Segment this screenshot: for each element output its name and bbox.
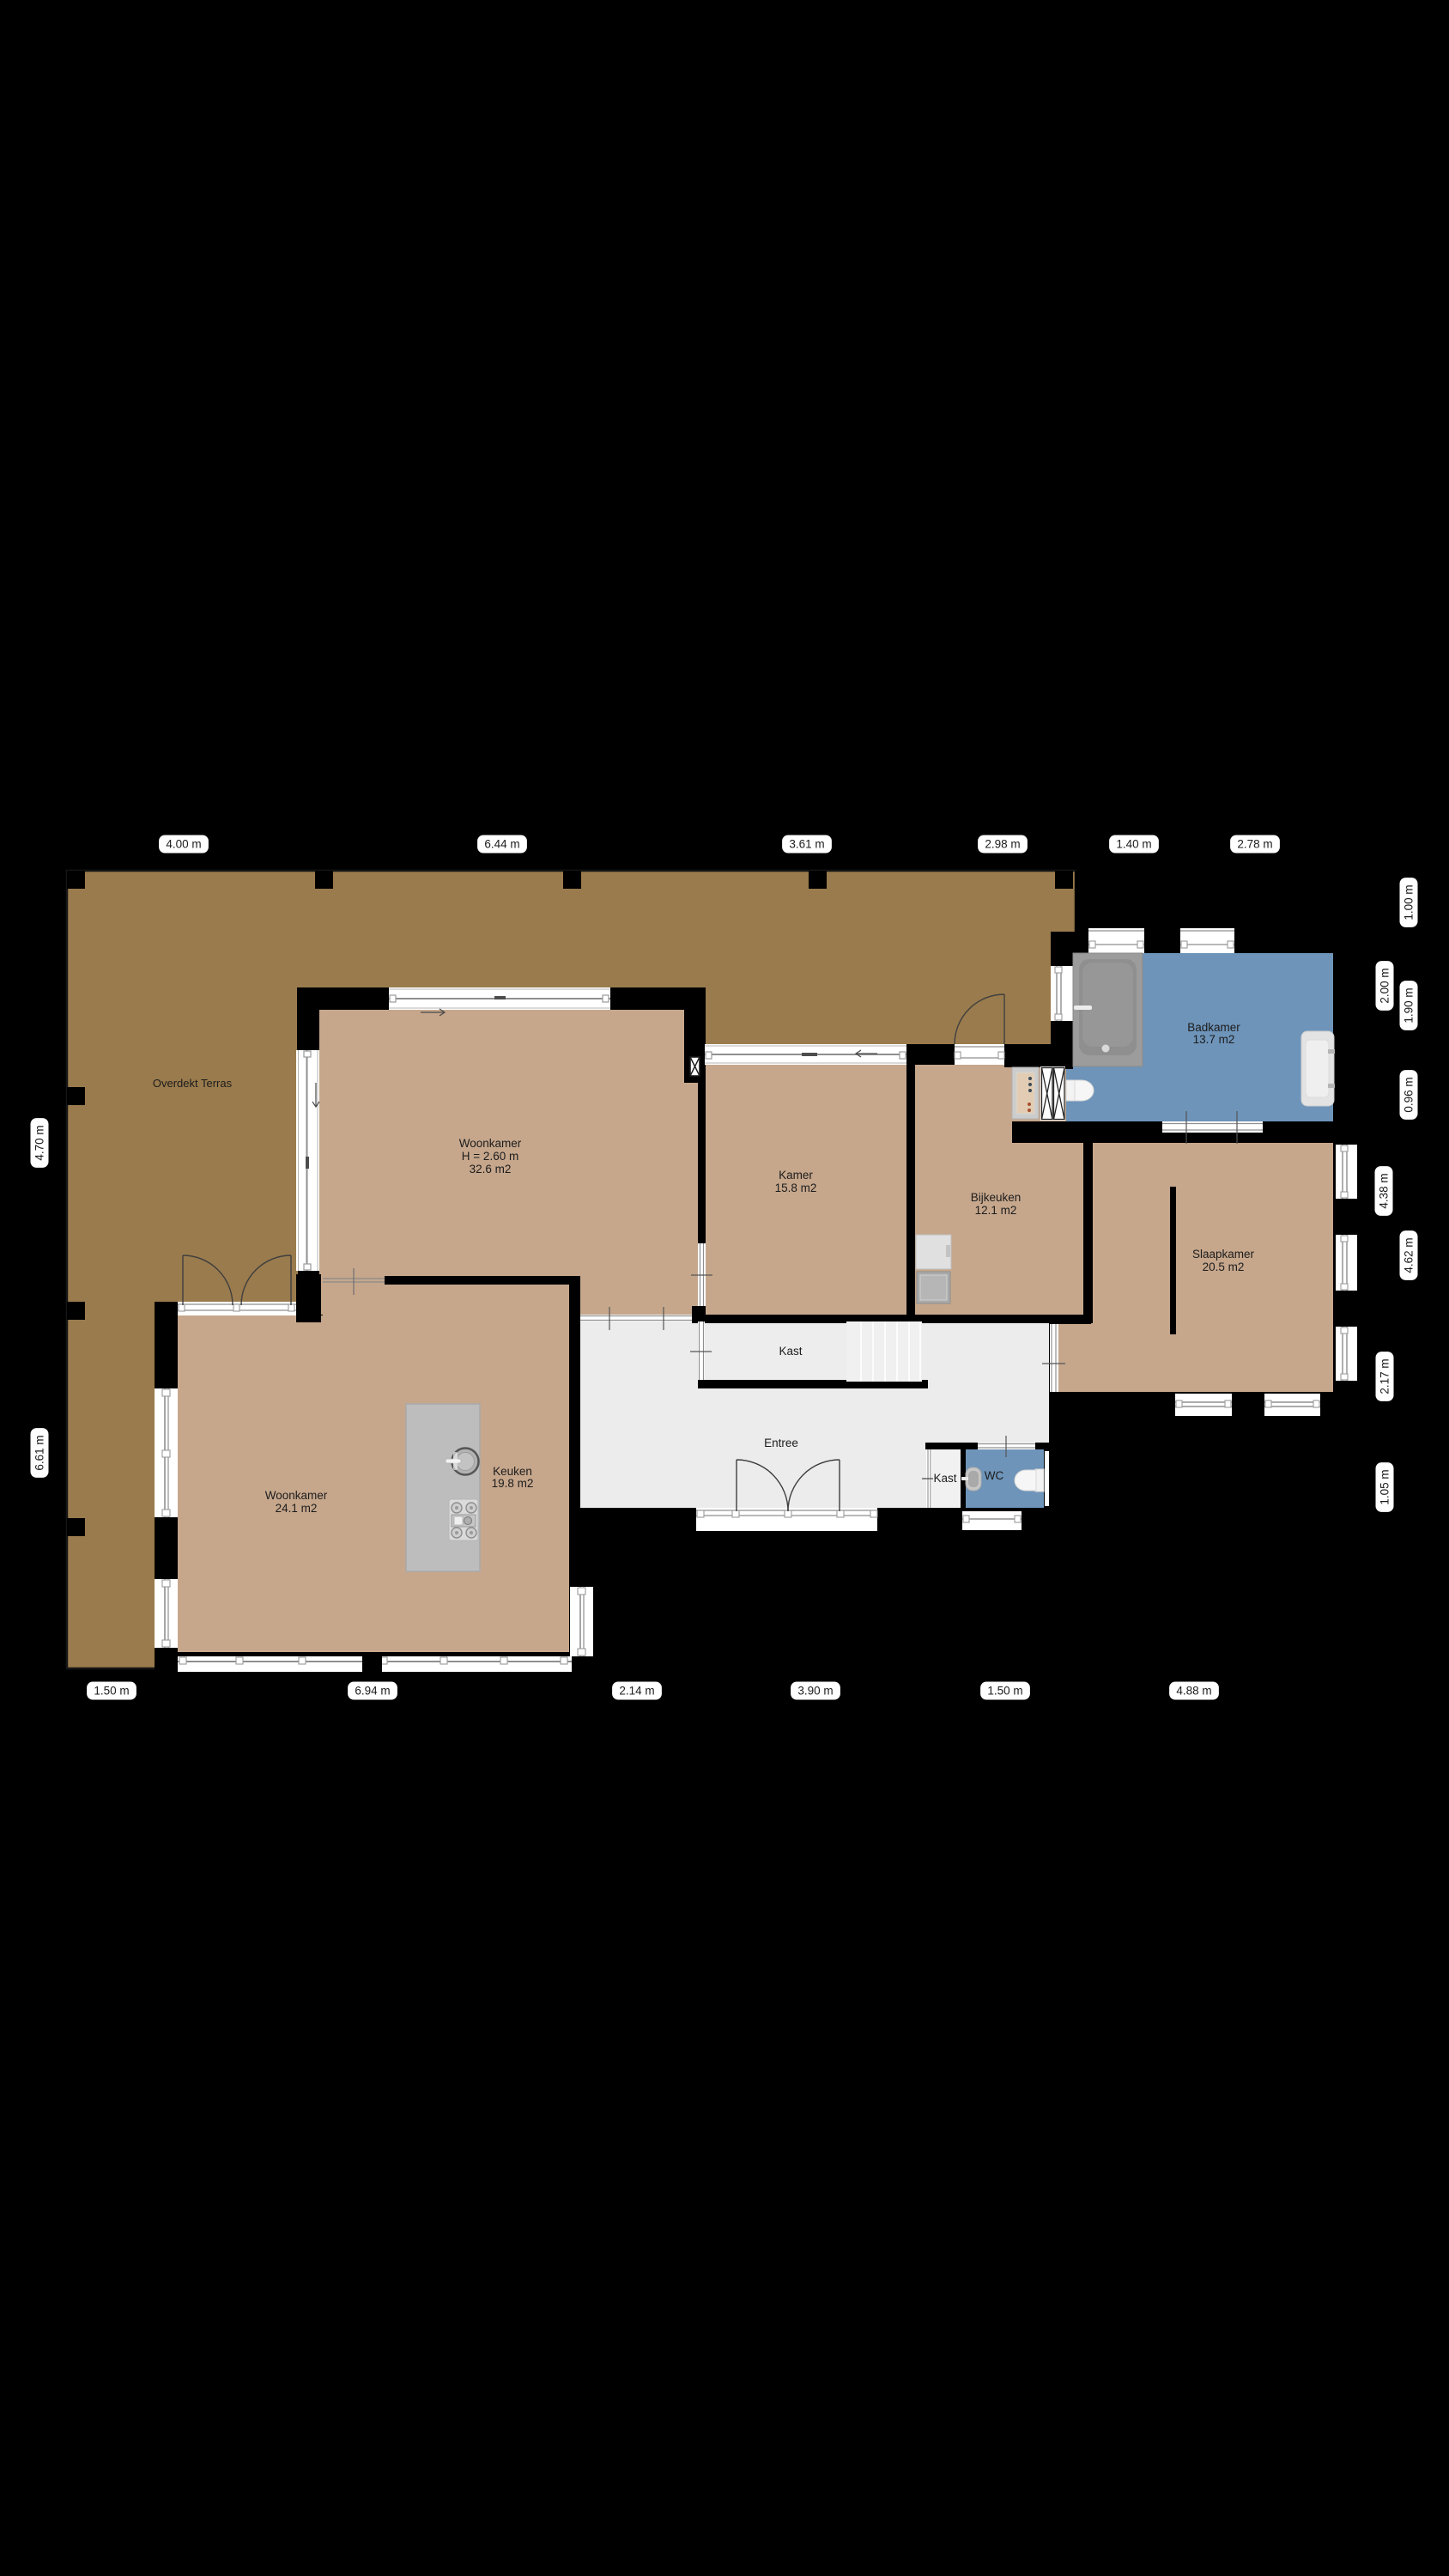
svg-text:1.90 m: 1.90 m xyxy=(1403,987,1416,1023)
svg-text:Kast: Kast xyxy=(933,1472,956,1485)
svg-text:6.44 m: 6.44 m xyxy=(484,838,519,851)
svg-text:Bijkeuken: Bijkeuken xyxy=(971,1191,1022,1204)
svg-text:4.38 m: 4.38 m xyxy=(1378,1173,1391,1208)
svg-text:32.6 m2: 32.6 m2 xyxy=(470,1163,512,1176)
svg-text:Keuken: Keuken xyxy=(493,1465,532,1478)
svg-text:2.17 m: 2.17 m xyxy=(1379,1358,1391,1394)
svg-text:Overdekt Terras: Overdekt Terras xyxy=(153,1077,233,1090)
svg-text:Entree: Entree xyxy=(764,1437,798,1449)
svg-text:H = 2.60 m: H = 2.60 m xyxy=(462,1150,518,1163)
svg-text:4.00 m: 4.00 m xyxy=(166,838,201,851)
svg-text:15.8 m2: 15.8 m2 xyxy=(775,1182,817,1194)
svg-text:2.78 m: 2.78 m xyxy=(1237,838,1272,851)
svg-text:20.5 m2: 20.5 m2 xyxy=(1203,1261,1245,1273)
svg-text:12.1 m2: 12.1 m2 xyxy=(975,1204,1017,1217)
svg-text:6.94 m: 6.94 m xyxy=(355,1685,390,1698)
svg-text:4.88 m: 4.88 m xyxy=(1176,1685,1211,1698)
svg-text:2.98 m: 2.98 m xyxy=(985,838,1020,851)
svg-text:2.14 m: 2.14 m xyxy=(619,1685,654,1698)
svg-text:1.50 m: 1.50 m xyxy=(94,1685,129,1698)
svg-text:Woonkamer: Woonkamer xyxy=(265,1489,328,1502)
svg-text:3.90 m: 3.90 m xyxy=(797,1685,833,1698)
svg-text:24.1 m2: 24.1 m2 xyxy=(276,1502,318,1515)
svg-text:13.7 m2: 13.7 m2 xyxy=(1193,1033,1235,1046)
svg-text:6.61 m: 6.61 m xyxy=(33,1435,46,1470)
svg-text:0.96 m: 0.96 m xyxy=(1403,1077,1416,1112)
svg-text:Badkamer: Badkamer xyxy=(1187,1021,1240,1034)
svg-text:Woonkamer: Woonkamer xyxy=(459,1137,522,1150)
svg-text:1.05 m: 1.05 m xyxy=(1379,1469,1391,1504)
svg-text:4.70 m: 4.70 m xyxy=(33,1125,46,1160)
svg-text:Slaapkamer: Slaapkamer xyxy=(1192,1248,1255,1261)
svg-text:1.40 m: 1.40 m xyxy=(1116,838,1151,851)
svg-text:1.50 m: 1.50 m xyxy=(987,1685,1022,1698)
svg-text:19.8 m2: 19.8 m2 xyxy=(492,1477,534,1490)
svg-text:4.62 m: 4.62 m xyxy=(1403,1237,1416,1273)
svg-text:WC: WC xyxy=(985,1469,1004,1482)
svg-text:3.61 m: 3.61 m xyxy=(789,838,824,851)
svg-text:1.00 m: 1.00 m xyxy=(1403,884,1416,920)
svg-text:2.00 m: 2.00 m xyxy=(1379,968,1391,1003)
svg-text:Kamer: Kamer xyxy=(779,1169,813,1182)
svg-text:Kast: Kast xyxy=(779,1345,802,1358)
